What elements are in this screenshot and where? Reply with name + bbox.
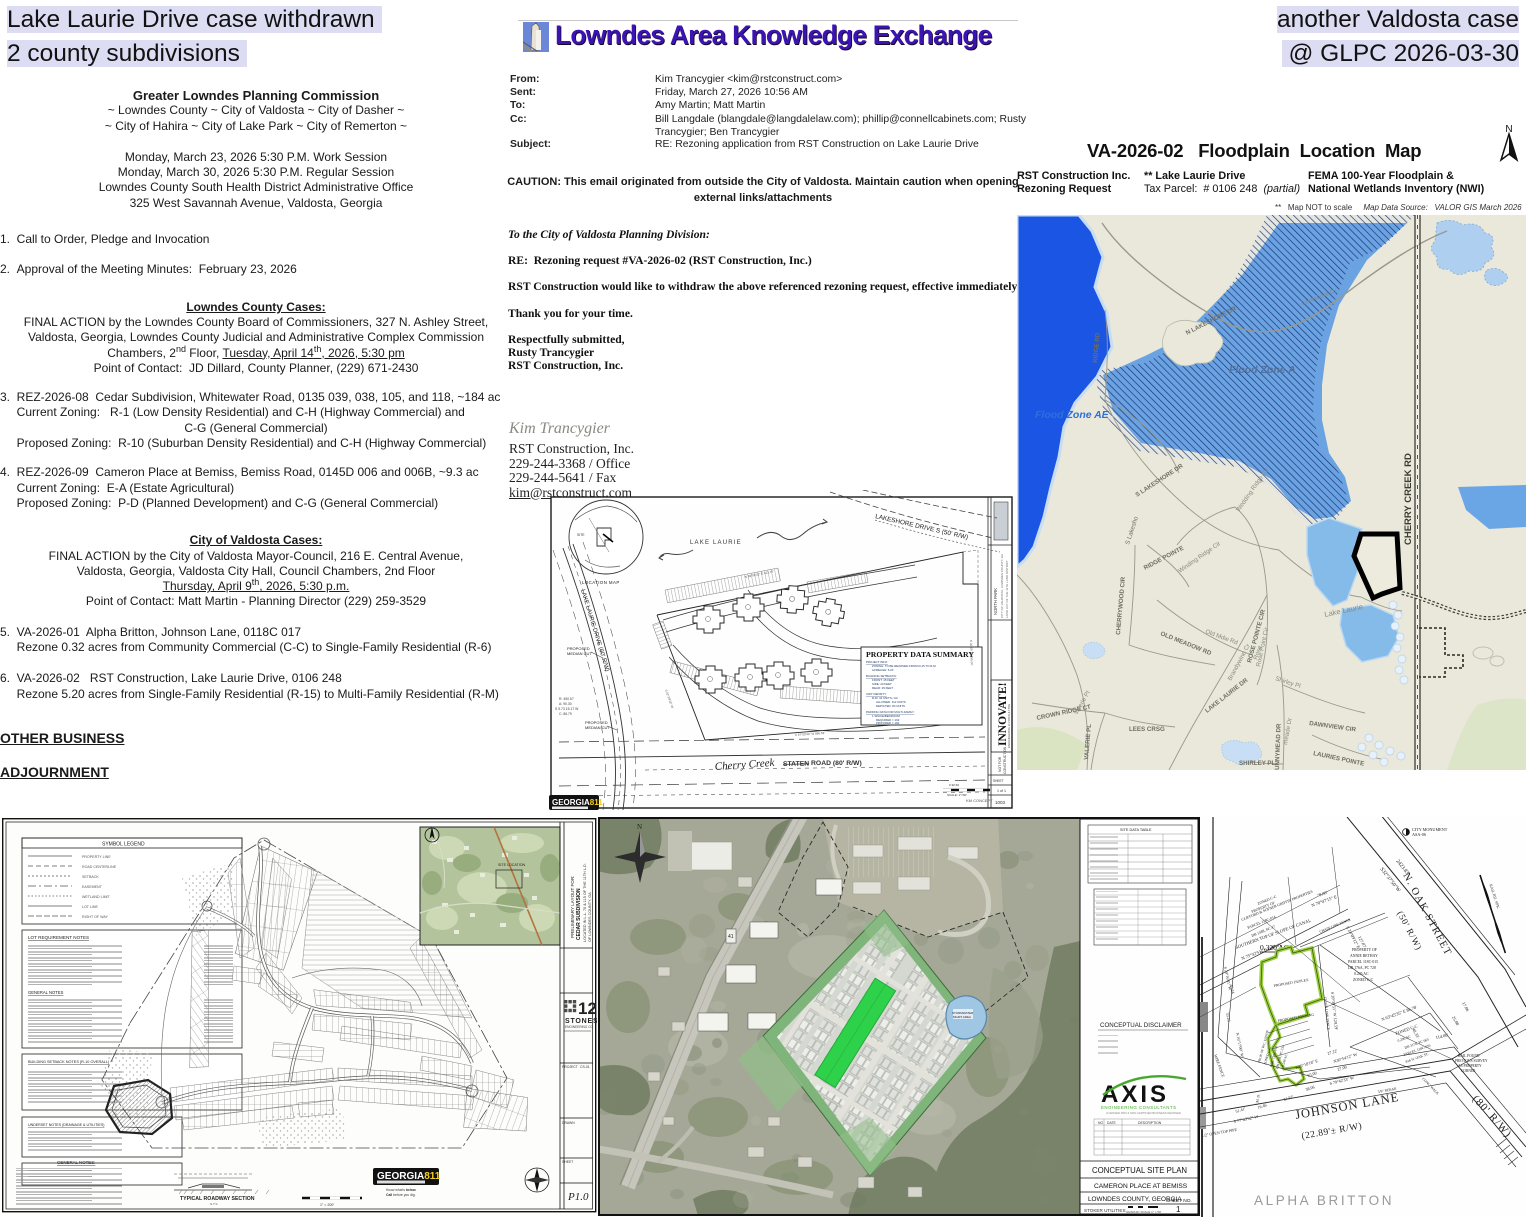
- svg-text:PROPERTY OF: PROPERTY OF: [1352, 948, 1377, 952]
- svg-text:PARCEL 118C-015: PARCEL 118C-015: [1348, 960, 1378, 964]
- svg-text:A: 90.30: A: 90.30: [559, 702, 572, 706]
- svg-text:SITE: SITE: [577, 533, 585, 537]
- svg-text:UNDERSET NOTES (DRAINAGE & UTI: UNDERSET NOTES (DRAINAGE & UTILITIES): [28, 1123, 104, 1127]
- svg-text:CEDAR SUBDIVISION: CEDAR SUBDIVISION: [576, 888, 582, 940]
- svg-text:ENGINEERING CO.: ENGINEERING CO.: [565, 1025, 594, 1029]
- svg-text:MEDIAN CUT: MEDIAN CUT: [567, 651, 592, 656]
- svg-text:NOT FOR: NOT FOR: [998, 756, 1002, 772]
- svg-text:PROPERTY DATA SUMMARY: PROPERTY DATA SUMMARY: [866, 650, 974, 659]
- svg-text:LOT REQUIREMENT NOTES: LOT REQUIREMENT NOTES: [28, 935, 89, 940]
- svg-text:MGMT AREA: MGMT AREA: [953, 1015, 971, 1019]
- svg-text:Flood Zone AE: Flood Zone AE: [1035, 409, 1110, 421]
- svg-text:N: N: [637, 823, 642, 831]
- svg-text:EASEMENT: EASEMENT: [82, 885, 103, 889]
- svg-text:Call before you dig.: Call before you dig.: [386, 1193, 416, 1197]
- svg-text:P1.0: P1.0: [567, 1191, 589, 1203]
- svg-text:GENERAL NOTES: GENERAL NOTES: [28, 990, 64, 995]
- svg-text:Flood Zone A: Flood Zone A: [1229, 364, 1296, 376]
- svg-text:CORNER: CORNER: [1461, 1069, 1476, 1073]
- svg-text:41: 41: [728, 934, 734, 940]
- svg-text:ENGINEERING & CONSULTING: ENGINEERING & CONSULTING: [1007, 703, 1011, 748]
- svg-text:SHEET: SHEET: [562, 1160, 573, 1164]
- svg-text:CS-01: CS-01: [580, 1065, 590, 1069]
- svg-text:DRAWN: DRAWN: [562, 1121, 575, 1125]
- svg-text:SHIRLEY PL: SHIRLEY PL: [1239, 760, 1276, 767]
- svg-text:CAMERON PLACE AT BEMISS: CAMERON PLACE AT BEMISS: [1094, 1183, 1188, 1190]
- svg-text:1: 1: [1176, 1205, 1181, 1214]
- svg-text:0.245 AC: 0.245 AC: [1354, 972, 1369, 976]
- svg-text:PROVIDED = 192: PROVIDED = 192: [876, 721, 900, 725]
- svg-text:ACREAGE: 5.20: ACREAGE: 5.20: [872, 668, 894, 672]
- svg-text:Know what's below.: Know what's below.: [386, 1188, 416, 1192]
- svg-text:C: 86.79: C: 86.79: [559, 712, 572, 716]
- svg-text:1" = 200': 1" = 200': [320, 1203, 334, 1207]
- svg-text:DESCRIPTION: DESCRIPTION: [1138, 1121, 1162, 1125]
- svg-text:GEORGIA811: GEORGIA811: [377, 1171, 441, 1182]
- svg-text:SCALE: 1"=60': SCALE: 1"=60': [947, 793, 967, 797]
- svg-text:STATEN: STATEN: [783, 761, 809, 768]
- svg-text:PROPERTY LINE: PROPERTY LINE: [82, 855, 111, 859]
- svg-text:1 of 1: 1 of 1: [997, 789, 1006, 793]
- svg-text:0 30 60: 0 30 60: [949, 783, 959, 787]
- svg-text:AS PROPERTY: AS PROPERTY: [1458, 1064, 1482, 1068]
- svg-text:PROJECT: PROJECT: [562, 1065, 578, 1069]
- svg-text:MEDIAN CUT: MEDIAN CUT: [585, 725, 610, 730]
- svg-text:LOCATED IN L.L. 70 & 115 OF TH: LOCATED IN L.L. 70 & 115 OF THE 11TH L.D…: [583, 863, 587, 942]
- svg-text:RIGHT OF WAY: RIGHT OF WAY: [82, 915, 108, 919]
- svg-text:ALPHA BRITTON: ALPHA BRITTON: [1254, 1193, 1394, 1208]
- svg-text:ROAD (80' R/W): ROAD (80' R/W): [811, 760, 862, 767]
- svg-text:CONCEPTUAL SITE PLAN: CONCEPTUAL SITE PLAN: [1092, 1166, 1187, 1175]
- svg-text:ENGINEERING CONSULTANTS: ENGINEERING CONSULTANTS: [1101, 1105, 1177, 1110]
- svg-text:N.T.S.: N.T.S.: [210, 1202, 218, 1206]
- svg-text:CONCEPTUAL DISCLAIMER: CONCEPTUAL DISCLAIMER: [1100, 1022, 1182, 1029]
- svg-text:ROAD CENTERLINE: ROAD CENTERLINE: [82, 865, 117, 869]
- svg-text:KM CONCEPT: KM CONCEPT: [966, 798, 993, 803]
- svg-text:PRELIMINARY LAYOUT FOR:: PRELIMINARY LAYOUT FOR:: [570, 876, 575, 938]
- svg-text:BUILDING SETBACK NOTES (R-10 O: BUILDING SETBACK NOTES (R-10 OVERALL): [28, 1060, 110, 1064]
- svg-text:LAKE LAURIE: LAKE LAURIE: [690, 540, 742, 546]
- svg-text:R: 450.57: R: 450.57: [559, 697, 574, 701]
- svg-text:NORTH PARK: NORTH PARK: [993, 588, 998, 615]
- svg-text:SHEET NO.: SHEET NO.: [1166, 1198, 1192, 1204]
- svg-text:PREVIOUS SURVEY: PREVIOUS SURVEY: [1455, 1059, 1488, 1063]
- svg-text:S 5.73 15.17 W: S 5.73 15.17 W: [555, 707, 579, 711]
- svg-text:LICENSED PRO # GRS-CERTIFIED B: LICENSED PRO # GRS-CERTIFIED BUSINESS RE…: [1106, 1111, 1181, 1115]
- svg-text:SITE LOCATION: SITE LOCATION: [498, 863, 525, 867]
- svg-text:DATE: DATE: [1107, 1121, 1117, 1125]
- svg-text:STONES: STONES: [565, 1018, 597, 1025]
- svg-text:12: 12: [578, 999, 597, 1018]
- svg-text:AXIS: AXIS: [1101, 1081, 1169, 1108]
- svg-text:SHEET: SHEET: [993, 779, 1004, 783]
- svg-text:RAIL FOUND: RAIL FOUND: [1458, 1054, 1480, 1058]
- svg-text:WETLAND LIMIT: WETLAND LIMIT: [82, 895, 111, 899]
- svg-text:ANNIE BETHAY: ANNIE BETHAY: [1350, 954, 1378, 958]
- svg-text:LOCATION MAP: LOCATION MAP: [582, 580, 620, 585]
- svg-text:STOKER UTILITIES: STOKER UTILITIES: [1084, 1208, 1126, 1213]
- svg-text:LAND LOT OF THE 11TH LAND DIST: LAND LOT OF THE 11TH LAND DISTRICT: [1005, 560, 1009, 618]
- svg-text:NO: NO: [1098, 1121, 1103, 1125]
- svg-text:ASA-06: ASA-06: [1412, 832, 1426, 837]
- svg-text:CITY OF VALDOSTA, LOWNDES COUN: CITY OF VALDOSTA, LOWNDES COUNTY, GA: [1000, 554, 1004, 618]
- svg-text:GEORGIA811: GEORGIA811: [552, 798, 603, 807]
- svg-text:1003: 1003: [995, 800, 1006, 805]
- svg-text:GRAPHIC SCALE 1" = 50': GRAPHIC SCALE 1" = 50': [1126, 1210, 1162, 1214]
- svg-text:SITE DATA TABLE: SITE DATA TABLE: [1120, 828, 1152, 832]
- svg-text:CHERRY CREEK RD: CHERRY CREEK RD: [1403, 453, 1414, 545]
- svg-text:SYMBOL LEGEND: SYMBOL LEGEND: [102, 842, 145, 848]
- svg-text:SETBACK: SETBACK: [82, 875, 99, 879]
- svg-text:GENERAL NOTES:: GENERAL NOTES:: [57, 1160, 95, 1165]
- svg-text:CONSTRUCTION: CONSTRUCTION: [1003, 746, 1007, 774]
- svg-text:REAR: 25 FEET: REAR: 25 FEET: [872, 686, 893, 690]
- svg-text:DEPICTED: 84 UNITS: DEPICTED: 84 UNITS: [876, 704, 905, 708]
- svg-text:LOT LINE: LOT LINE: [82, 905, 99, 909]
- svg-text:OF LOWNDES COUNTY, GA: OF LOWNDES COUNTY, GA: [588, 892, 592, 942]
- svg-text:LEES CRSG: LEES CRSG: [1129, 726, 1165, 733]
